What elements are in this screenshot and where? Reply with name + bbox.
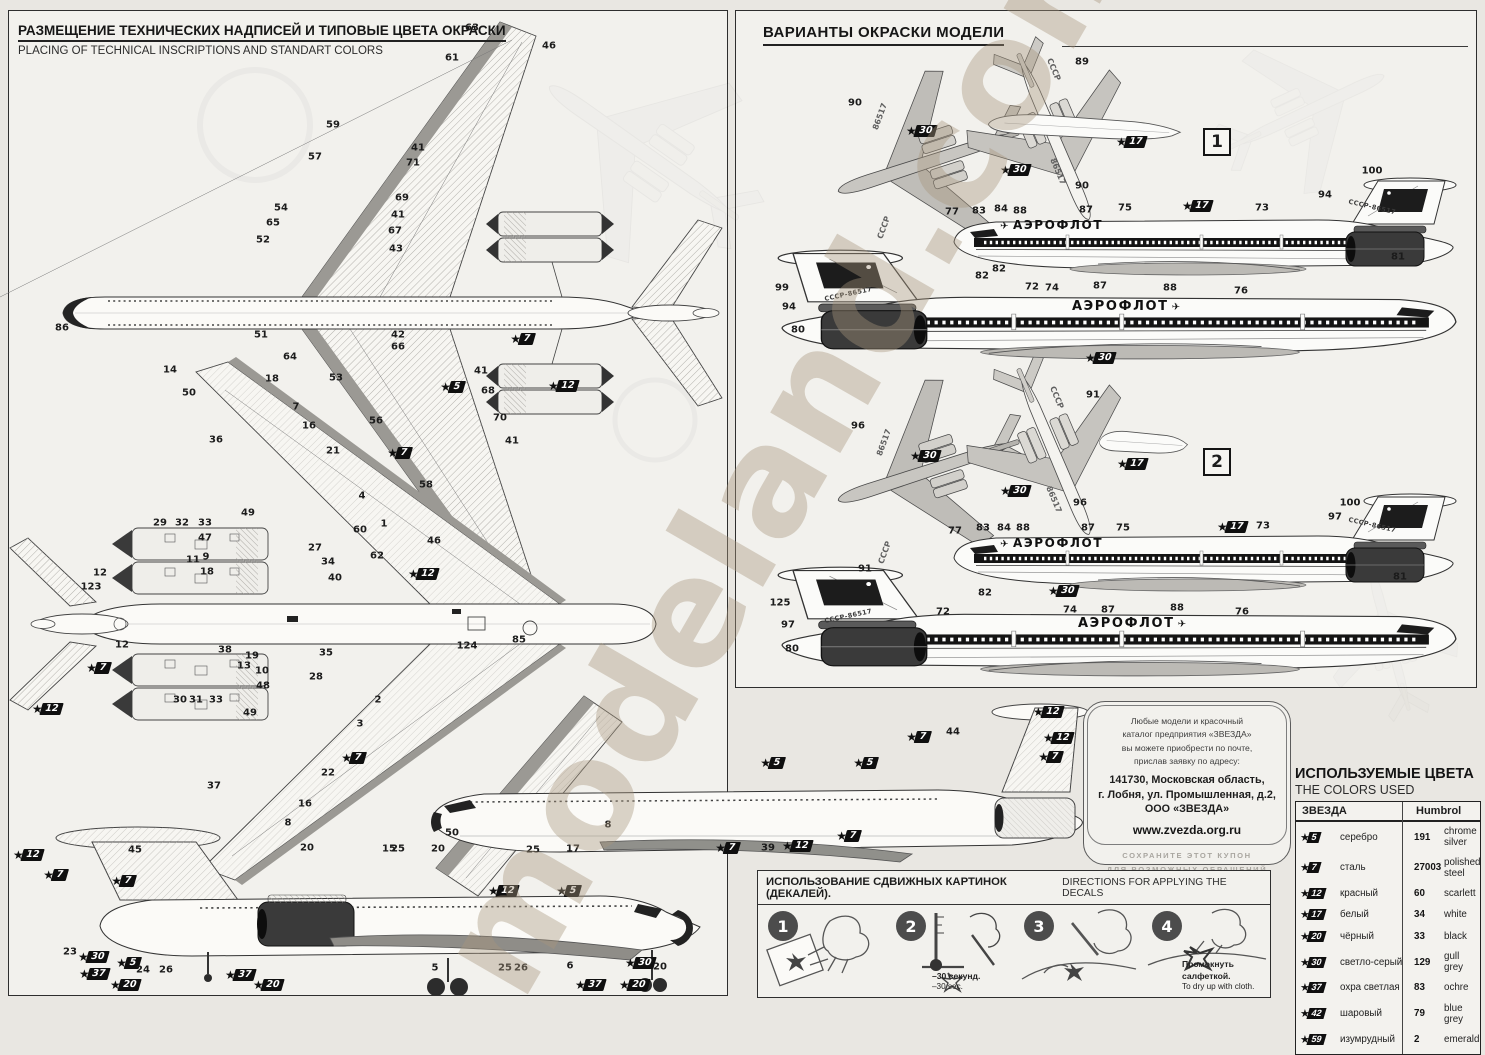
paint-color-callout: ★7	[906, 731, 929, 743]
color-table-row: ★59изумрудный2emerald	[1296, 1029, 1480, 1050]
humbrol-number: 34	[1406, 909, 1440, 920]
zvezda-color-badge: ★59	[1300, 1033, 1340, 1046]
decal-step-4: 4 Промокнуть салфеткой. To dry up with c…	[1142, 905, 1270, 997]
paint-color-callout: ★5	[853, 757, 876, 769]
aeroflot-wings-icon: ✈	[1172, 302, 1182, 313]
paint-color-callout: ★12	[1033, 706, 1063, 718]
colors-title-ru: ИСПОЛЬЗУЕМЫЕ ЦВЕТА	[1295, 766, 1481, 782]
title-rule	[1062, 46, 1468, 47]
color-table-row: ★17белый34white	[1296, 904, 1480, 925]
paint-color-callout: ★12	[1043, 732, 1073, 744]
color-table-row: ★7сталь27003polished steel	[1296, 852, 1480, 882]
coupon-line: Любые модели и красочный	[1094, 715, 1280, 728]
color-table-row: ★12красный60scarlett	[1296, 883, 1480, 904]
zvezda-mail-coupon: Любые модели и красочный каталог предпри…	[1083, 701, 1291, 865]
decal-title-ru: ИСПОЛЬЗОВАНИЕ СДВИЖНЫХ КАРТИНОК (ДЕКАЛЕЙ…	[766, 876, 1062, 900]
colors-table: ЗВЕЗДА Humbrol ★5серебро191chrome silver…	[1295, 801, 1481, 1055]
colors-table-rows: ★5серебро191chrome silver★7сталь27003pol…	[1296, 822, 1480, 1050]
step-1-badge: 1	[768, 911, 798, 941]
right-title-ru: ВАРИАНТЫ ОКРАСКИ МОДЕЛИ	[763, 24, 1004, 46]
color-name-ru: охра светлая	[1340, 982, 1406, 993]
color-name-ru: чёрный	[1340, 931, 1406, 942]
color-name-en: emerald	[1440, 1034, 1480, 1045]
paint-color-callout: ★5	[760, 757, 783, 769]
zvezda-color-badge: ★20	[1300, 930, 1340, 943]
color-name-en: scarlett	[1440, 888, 1480, 899]
color-name-en: polished steel	[1440, 857, 1481, 879]
column-zvezda: ЗВЕЗДА	[1302, 805, 1408, 817]
left-panel-title: РАЗМЕЩЕНИЕ ТЕХНИЧЕСКИХ НАДПИСЕЙ И ТИПОВЫ…	[18, 22, 506, 57]
color-name-en: black	[1440, 931, 1480, 942]
paint-variants-panel	[735, 10, 1477, 688]
step-4-badge: 4	[1152, 911, 1182, 941]
color-name-ru: изумрудный	[1340, 1034, 1406, 1045]
zvezda-color-badge: ★7	[1300, 861, 1340, 874]
color-name-en: white	[1440, 909, 1480, 920]
step-2-note-en: –30 sec.	[932, 982, 963, 991]
color-table-row: ★42шаровый79blue grey	[1296, 999, 1480, 1029]
column-humbrol: Humbrol	[1408, 805, 1480, 817]
color-name-en: blue grey	[1440, 1003, 1480, 1025]
right-panel-title: ВАРИАНТЫ ОКРАСКИ МОДЕЛИ	[763, 24, 1004, 46]
step-2-note-ru: –30 секунд.	[932, 971, 980, 981]
decal-step-2: 2 –30 секунд. –30 sec.	[886, 905, 1014, 997]
zvezda-color-badge: ★17	[1300, 908, 1340, 921]
zvezda-color-badge: ★12	[1300, 887, 1340, 900]
left-technical-panel	[8, 10, 728, 996]
coupon-inner: Любые модели и красочный каталог предпри…	[1087, 705, 1287, 845]
decal-step-3: 3	[1014, 905, 1142, 997]
part-number-callout: 39	[761, 843, 775, 854]
humbrol-number: 83	[1406, 982, 1440, 993]
paint-color-callout: ★7	[836, 830, 859, 842]
zvezda-color-badge: ★42	[1300, 1007, 1340, 1020]
color-name-ru: шаровый	[1340, 1008, 1406, 1019]
step-4-note-en: To dry up with cloth.	[1182, 982, 1254, 991]
decal-steps: 1 2	[758, 905, 1270, 997]
variant-2-box: 2	[1203, 448, 1231, 476]
humbrol-number: 33	[1406, 931, 1440, 942]
humbrol-number: 2	[1406, 1034, 1440, 1045]
humbrol-number: 27003	[1406, 862, 1440, 873]
decal-directions-panel: ИСПОЛЬЗОВАНИЕ СДВИЖНЫХ КАРТИНОК (ДЕКАЛЕЙ…	[757, 870, 1271, 998]
zvezda-website: www.zvezda.org.ru	[1094, 823, 1280, 837]
coupon-line: вы можете приобрести по почте,	[1094, 742, 1280, 755]
part-number-callout: 44	[946, 727, 960, 738]
color-table-row: ★20чёрный33black	[1296, 926, 1480, 947]
colors-table-header: ЗВЕЗДА Humbrol	[1296, 802, 1480, 822]
colors-used-section: ИСПОЛЬЗУЕМЫЕ ЦВЕТА THE COLORS USED ЗВЕЗД…	[1295, 766, 1481, 1055]
aeroflot-title-v1b: АЭРОФЛОТ✈	[1072, 299, 1182, 314]
left-title-en: PLACING OF TECHNICAL INSCRIPTIONS AND ST…	[18, 42, 506, 57]
humbrol-number: 60	[1406, 888, 1440, 899]
coupon-line: каталог предприятия «ЗВЕЗДА»	[1094, 728, 1280, 741]
zvezda-color-badge: ★37	[1300, 981, 1340, 994]
aeroflot-wings-icon: ✈	[1000, 539, 1010, 550]
step-3-badge: 3	[1024, 911, 1054, 941]
aeroflot-title-v1a: ✈АЭРОФЛОТ	[1000, 218, 1103, 232]
color-name-ru: серебро	[1340, 832, 1406, 843]
aeroflot-wings-icon: ✈	[1178, 619, 1188, 630]
step-4-note: Промокнуть салфеткой. To dry up with clo…	[1182, 959, 1270, 993]
aeroflot-title-v2a: ✈АЭРОФЛОТ	[1000, 536, 1103, 550]
coupon-address-line3: ООО «ЗВЕЗДА»	[1094, 802, 1280, 816]
zvezda-color-badge: ★5	[1300, 831, 1340, 844]
colors-title-en: THE COLORS USED	[1295, 783, 1481, 797]
color-name-en: chrome silver	[1440, 826, 1480, 848]
decal-title-en: DIRECTIONS FOR APPLYING THE DECALS	[1062, 877, 1262, 899]
color-name-ru: сталь	[1340, 862, 1406, 873]
step-4-note-ru: Промокнуть салфеткой.	[1182, 959, 1234, 981]
humbrol-number: 79	[1406, 1008, 1440, 1019]
color-table-row: ★30светло-серый129gull grey	[1296, 947, 1480, 977]
humbrol-number: 129	[1406, 957, 1440, 968]
instruction-sheet: { "watermark": "modeland.com.ua", "left_…	[0, 0, 1485, 1006]
coupon-address-line1: 141730, Московская область,	[1094, 773, 1280, 787]
paint-color-callout: ★12	[782, 840, 812, 852]
coupon-note-line1: СОХРАНИТЕ ЭТОТ КУПОН	[1087, 849, 1287, 863]
color-name-ru: красный	[1340, 888, 1406, 899]
color-name-en: ochre	[1440, 982, 1480, 993]
zvezda-color-badge: ★30	[1300, 956, 1340, 969]
color-name-ru: белый	[1340, 909, 1406, 920]
step-2-badge: 2	[896, 911, 926, 941]
paint-color-callout: ★7	[1038, 751, 1061, 763]
aeroflot-title-v2b: АЭРОФЛОТ✈	[1078, 616, 1188, 631]
color-name-ru: светло-серый	[1340, 957, 1406, 968]
color-name-en: gull grey	[1440, 951, 1480, 973]
coupon-line: прислав заявку по адресу:	[1094, 755, 1280, 768]
humbrol-number: 191	[1406, 832, 1440, 843]
step-2-note: –30 секунд. –30 sec.	[932, 971, 980, 993]
coupon-address-line2: г. Лобня, ул. Промышленная, д.2,	[1094, 788, 1280, 802]
variant-2-number: 2	[1211, 452, 1223, 472]
variant-1-number: 1	[1211, 132, 1223, 152]
table-divider	[1402, 802, 1403, 1054]
decal-header: ИСПОЛЬЗОВАНИЕ СДВИЖНЫХ КАРТИНОК (ДЕКАЛЕЙ…	[758, 871, 1270, 905]
color-table-row: ★37охра светлая83ochre	[1296, 977, 1480, 998]
color-table-row: ★5серебро191chrome silver	[1296, 822, 1480, 852]
variant-1-box: 1	[1203, 128, 1231, 156]
aeroflot-wings-icon: ✈	[1000, 221, 1010, 232]
left-title-ru: РАЗМЕЩЕНИЕ ТЕХНИЧЕСКИХ НАДПИСЕЙ И ТИПОВЫ…	[18, 23, 506, 42]
decal-step-1: 1	[758, 905, 886, 997]
